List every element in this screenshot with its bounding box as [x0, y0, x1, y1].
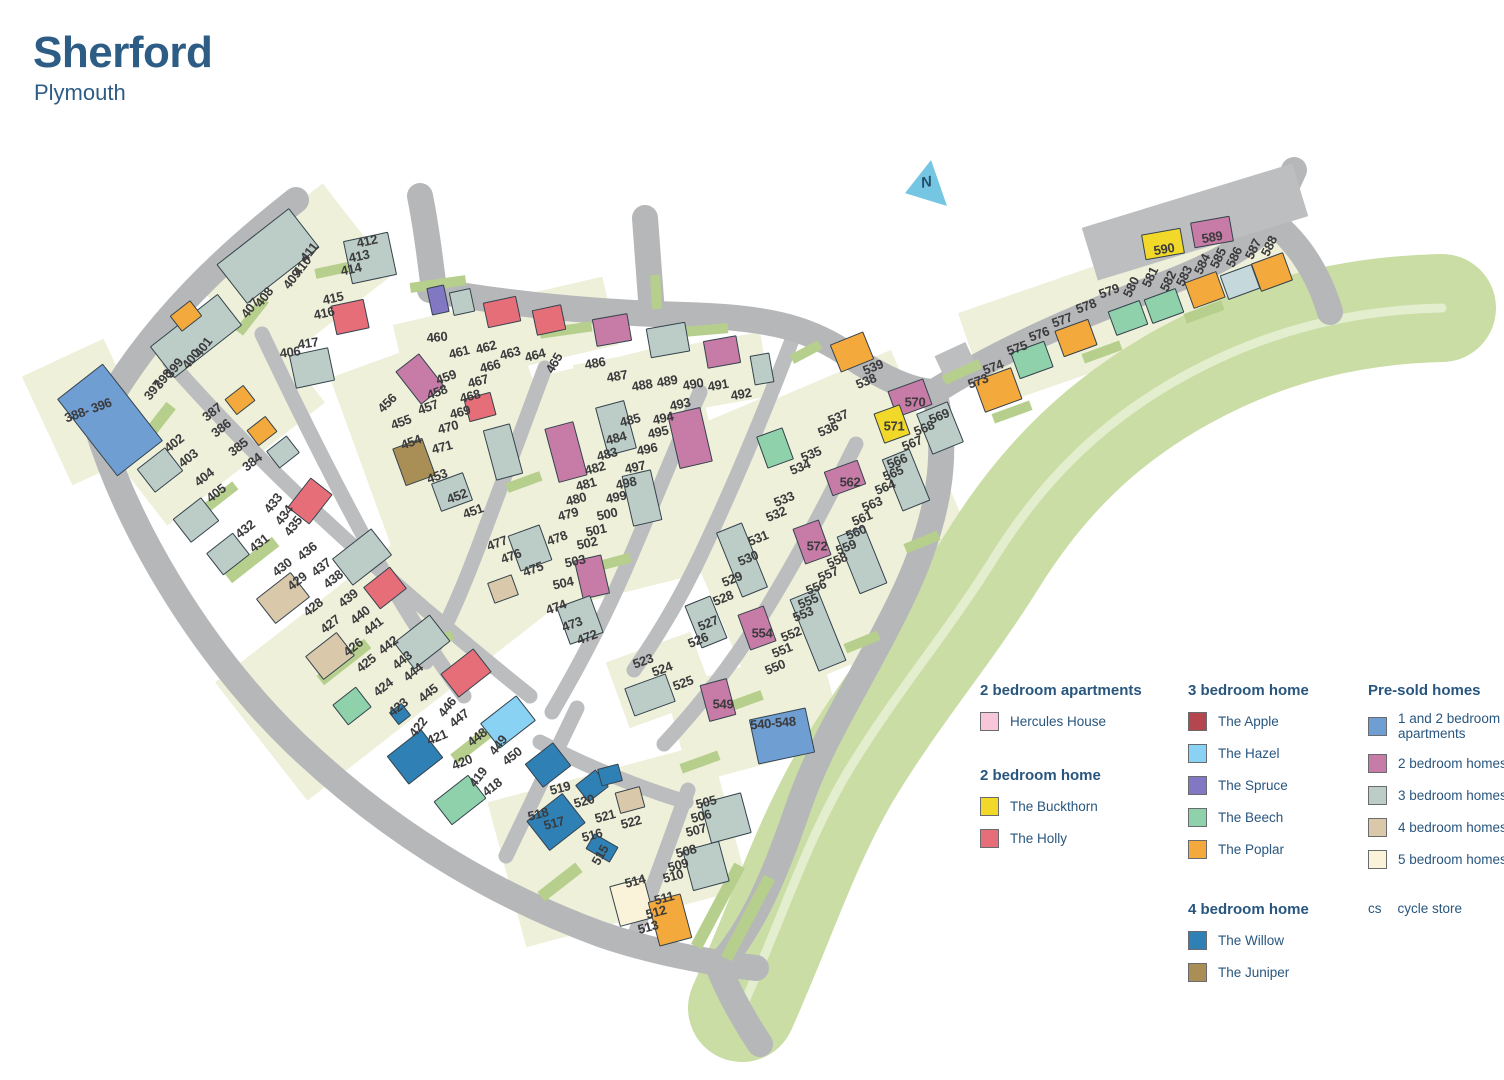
- legend-item: The Beech: [1188, 807, 1338, 827]
- legend-swatch-icon: [1188, 931, 1207, 950]
- legend-column-2: 3 bedroom home The Apple The Hazel The S…: [1188, 682, 1338, 988]
- legend-item-label: 2 bedroom homes: [1398, 756, 1504, 771]
- legend-swatch-icon: [980, 829, 999, 848]
- legend-swatch-icon: [1188, 963, 1207, 982]
- legend-item-label: The Beech: [1218, 810, 1283, 825]
- legend-swatch-icon: [1368, 786, 1387, 805]
- cycle-store-note: cs cycle store: [1368, 901, 1504, 916]
- legend-swatch-icon: [1188, 712, 1207, 731]
- legend-column-1: 2 bedroom apartments Hercules House 2 be…: [980, 682, 1158, 988]
- legend-item: The Holly: [980, 828, 1158, 848]
- cycle-store-label: cycle store: [1398, 901, 1463, 916]
- cycle-store-abbr: cs: [1368, 901, 1382, 916]
- legend-item-label: The Apple: [1218, 714, 1279, 729]
- legend-item: The Poplar: [1188, 839, 1338, 859]
- page-header: Sherford Plymouth: [33, 30, 212, 106]
- legend-swatch-icon: [1188, 808, 1207, 827]
- legend-item-label: 1 and 2 bedroom apartments: [1398, 711, 1504, 741]
- legend-item: The Hazel: [1188, 743, 1338, 763]
- legend-item: The Juniper: [1188, 962, 1338, 982]
- legend-item: The Willow: [1188, 930, 1338, 950]
- legend-heading: 2 bedroom home: [980, 767, 1158, 784]
- site-plan-page: 388- 39639739839940040140240340440538438…: [0, 0, 1504, 1080]
- page-title: Sherford: [33, 30, 212, 76]
- legend-swatch-icon: [980, 797, 999, 816]
- legend-item: 5 bedroom homes: [1368, 849, 1504, 869]
- legend-item: Hercules House: [980, 711, 1158, 731]
- legend-swatch-icon: [1368, 818, 1387, 837]
- legend-swatch-icon: [1368, 717, 1387, 736]
- legend-item-label: 3 bedroom homes: [1398, 788, 1504, 803]
- legend-item-label: 4 bedroom homes: [1398, 820, 1504, 835]
- legend-item-label: The Hazel: [1218, 746, 1280, 761]
- page-subtitle: Plymouth: [34, 80, 212, 106]
- legend-item-label: The Willow: [1218, 933, 1284, 948]
- legend-swatch-icon: [980, 712, 999, 731]
- legend-heading: 2 bedroom apartments: [980, 682, 1158, 699]
- legend-item-label: Hercules House: [1010, 714, 1106, 729]
- legend-column-3: Pre-sold homes 1 and 2 bedroom apartment…: [1368, 682, 1504, 988]
- legend-item-label: 5 bedroom homes: [1398, 852, 1504, 867]
- legend-item-label: The Holly: [1010, 831, 1067, 846]
- legend-item: The Spruce: [1188, 775, 1338, 795]
- legend-item-label: The Buckthorn: [1010, 799, 1098, 814]
- legend-item: 4 bedroom homes: [1368, 817, 1504, 837]
- legend-item: 1 and 2 bedroom apartments: [1368, 711, 1504, 741]
- legend-item: The Apple: [1188, 711, 1338, 731]
- legend-swatch-icon: [1188, 776, 1207, 795]
- legend-swatch-icon: [1188, 840, 1207, 859]
- legend-item-label: The Poplar: [1218, 842, 1284, 857]
- legend-swatch-icon: [1368, 850, 1387, 869]
- legend-heading: 4 bedroom home: [1188, 901, 1338, 918]
- north-compass: N: [905, 160, 947, 206]
- legend-item: 2 bedroom homes: [1368, 753, 1504, 773]
- legend-item-label: The Spruce: [1218, 778, 1288, 793]
- legend-heading: 3 bedroom home: [1188, 682, 1338, 699]
- legend-item: 3 bedroom homes: [1368, 785, 1504, 805]
- legend-heading: Pre-sold homes: [1368, 682, 1504, 699]
- legend-swatch-icon: [1368, 754, 1387, 773]
- legend-item-label: The Juniper: [1218, 965, 1289, 980]
- legend-swatch-icon: [1188, 744, 1207, 763]
- legend-item: The Buckthorn: [980, 796, 1158, 816]
- legend: 2 bedroom apartments Hercules House 2 be…: [980, 682, 1504, 988]
